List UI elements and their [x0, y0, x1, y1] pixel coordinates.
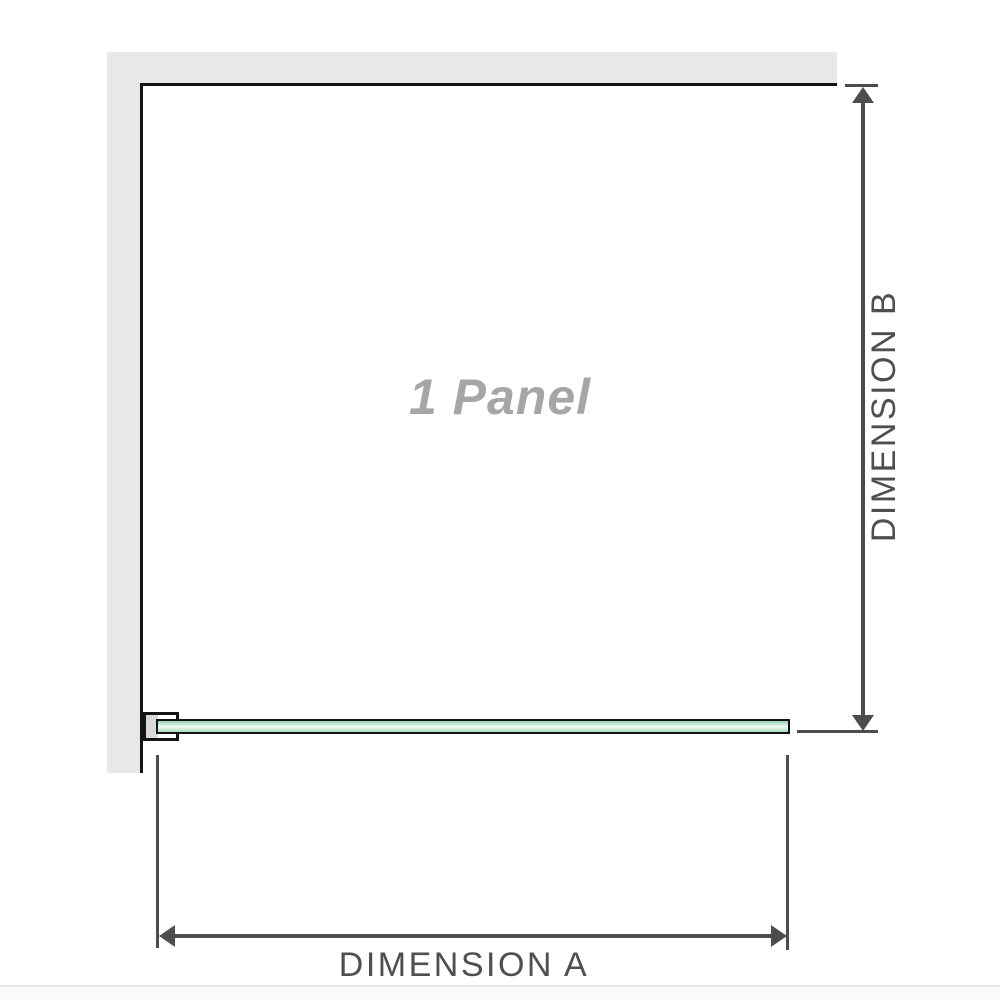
wall-left — [107, 52, 140, 773]
dimension-a-extension-left — [156, 755, 159, 948]
arrow-right-icon — [771, 925, 787, 947]
arrow-down-icon — [852, 715, 874, 731]
arrow-left-icon — [159, 925, 175, 947]
arrow-up-icon — [852, 87, 874, 103]
dimension-b-label: DIMENSION B — [864, 256, 904, 576]
dimension-a-extension-right — [786, 755, 789, 950]
below-baseline-strip — [0, 987, 1000, 1000]
wall-top — [107, 52, 837, 84]
panel-count-label: 1 Panel — [340, 368, 660, 426]
dimension-a-line — [172, 934, 774, 938]
dimension-a-label: DIMENSION A — [264, 946, 664, 985]
glass-panel — [156, 719, 790, 734]
